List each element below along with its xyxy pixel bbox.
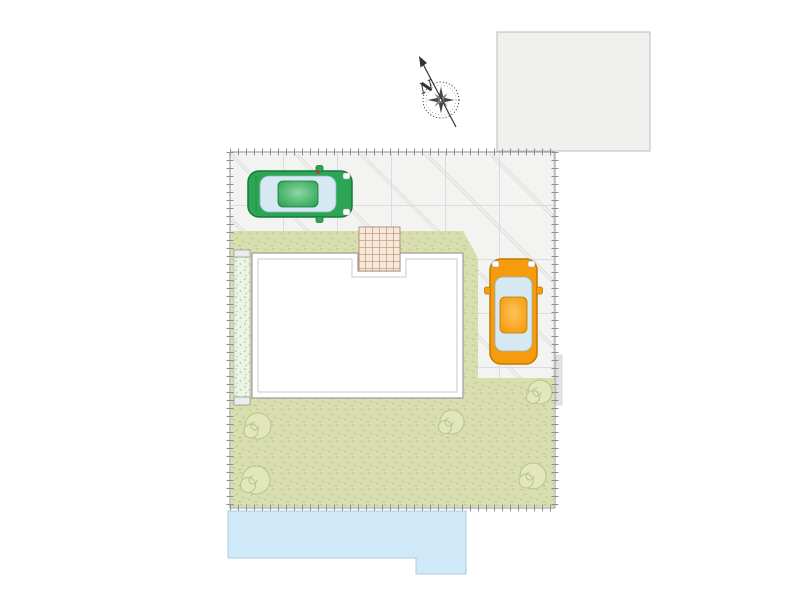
orange-car xyxy=(485,259,543,364)
car-mirror xyxy=(537,287,543,294)
car-mirror xyxy=(485,287,491,294)
gravel-strip-cap xyxy=(234,250,250,257)
car-roof xyxy=(500,297,527,333)
headlight xyxy=(492,261,499,267)
site-plan: N xyxy=(0,0,800,600)
headlight xyxy=(343,173,350,179)
retaining-wall-strip xyxy=(556,355,562,405)
car-roof xyxy=(278,181,318,207)
gravel-strip-cap xyxy=(234,397,250,405)
headlight xyxy=(343,209,350,215)
green-car xyxy=(248,166,352,223)
gravel-bed xyxy=(234,257,250,397)
headlight xyxy=(528,261,535,267)
gravel-strip xyxy=(234,250,250,405)
garden-bush xyxy=(244,413,271,439)
neighbor-building xyxy=(497,32,650,151)
car-antenna xyxy=(316,170,320,174)
house-outer-wall xyxy=(252,253,463,398)
house-footprint xyxy=(252,253,463,398)
site-plan-canvas: N xyxy=(0,0,800,600)
entrance-tiles xyxy=(359,227,400,271)
car-mirror xyxy=(316,217,323,223)
garden-bush xyxy=(519,463,546,489)
